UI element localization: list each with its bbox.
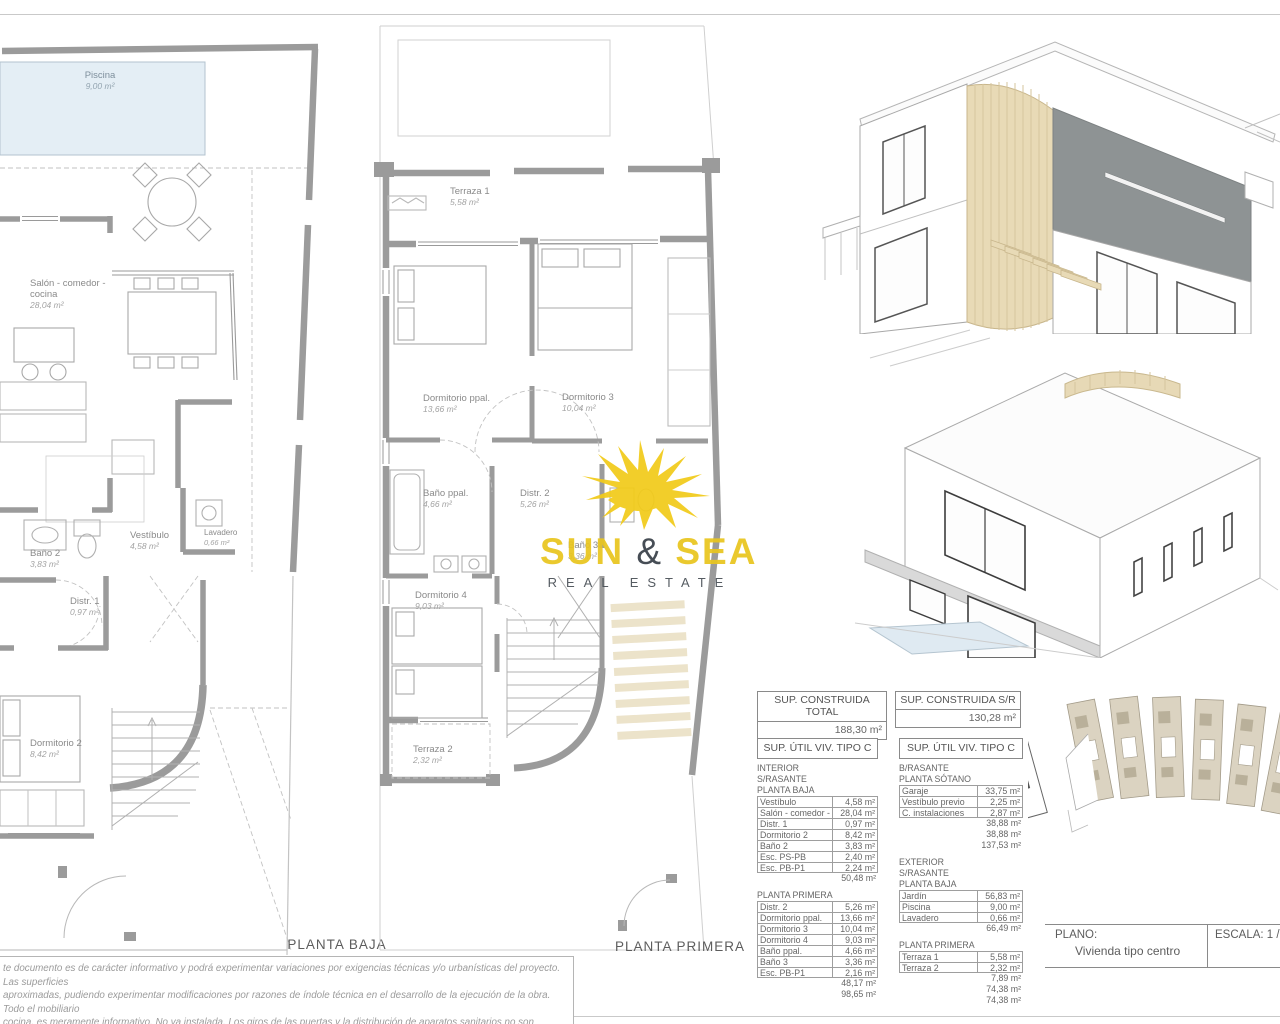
table-row: Baño 23,83 m² [757, 840, 878, 851]
table-subtotal: 74,38 m² [899, 995, 1023, 1006]
table-row: Vestíbulo4,58 m² [757, 796, 878, 807]
plano-section: PLANO: Vivienda tipo centro [1055, 929, 1180, 958]
table-section-label: S/RASANTE [757, 774, 878, 785]
table-subtotal: 98,65 m² [757, 989, 878, 1000]
table-sup-construida-sr: SUP. CONSTRUIDA S/R 130,28 m² [895, 691, 1021, 728]
room-label-lavadero: Lavadero0,66 m² [204, 528, 237, 547]
table-row: Dormitorio ppal.13,66 m² [757, 912, 878, 923]
table-subtotal: 66,49 m² [899, 923, 1023, 934]
table-row: Dormitorio 310,04 m² [757, 923, 878, 934]
table-sup-construida-total: SUP. CONSTRUIDA TOTAL 188,30 m² [757, 691, 887, 740]
room-label-distr1: Distr. 10,97 m² [70, 596, 100, 618]
room-label-dormitorio4: Dormitorio 49,03 m² [415, 590, 467, 612]
property-lines [0, 576, 293, 955]
table-row: Lavadero0,66 m² [899, 912, 1023, 923]
table-subtotal: 38,88 m² [899, 829, 1023, 840]
disclaimer-note: te documento es de carácter informativo … [0, 956, 574, 1024]
architectural-sheet: Piscina9,00 m² Salón - comedor -cocina 2… [0, 0, 1280, 1024]
escala-value: ESCALA: 1 / 75 [1215, 929, 1280, 941]
render [823, 42, 1280, 334]
room-label-bano3: Baño 33,36 m² [568, 540, 598, 562]
axonometric-view-front [805, 22, 1280, 334]
table-section-label: INTERIOR [757, 763, 878, 774]
plots [1028, 696, 1280, 832]
table-section-label: PLANTA PRIMERA [899, 940, 1023, 951]
room-label-dormitorio3: Dormitorio 310,04 m² [562, 392, 614, 414]
table-row: Vestíbulo previo2,25 m² [899, 796, 1023, 807]
garden-gate [58, 866, 136, 941]
table-value: 130,28 m² [895, 710, 1021, 728]
plano-value: Vivienda tipo centro [1075, 944, 1180, 958]
title-block: PLANO: Vivienda tipo centro ESCALA: 1 / … [1045, 924, 1280, 968]
axonometric-view-rear [850, 328, 1280, 658]
table-row: Distr. 10,97 m² [757, 818, 878, 829]
curved-wall [514, 668, 602, 768]
table-row: Baño 33,36 m² [757, 956, 878, 967]
table-subtotal: 38,88 m² [899, 818, 1023, 829]
stairs [507, 576, 600, 738]
table-header: SUP. CONSTRUIDA TOTAL [757, 691, 887, 722]
table-sup-util-interior: SUP. ÚTIL VIV. TIPO C INTERIORS/RASANTEP… [757, 738, 878, 1000]
table-header: SUP. ÚTIL VIV. TIPO C [757, 738, 878, 759]
room-label-terraza1: Terraza 15,58 m² [450, 186, 490, 208]
table-row: Dormitorio 49,03 m² [757, 934, 878, 945]
room-label-dormitorio2: Dormitorio 28,42 m² [30, 738, 82, 760]
room-label-distr2: Distr. 25,26 m² [520, 488, 550, 510]
table-subtotal: 50,48 m² [757, 873, 878, 884]
table-body: INTERIORS/RASANTEPLANTA BAJAVestíbulo4,5… [757, 763, 878, 1000]
disclaimer-line: aproximadas, pudiendo experimentar modif… [3, 989, 563, 1016]
title-block-divider [1207, 925, 1208, 967]
table-row: Jardín56,83 m² [899, 890, 1023, 901]
table-row: Esc. PB-P12,24 m² [757, 862, 878, 873]
curved-wall [110, 685, 203, 788]
room-label-dormitorio-ppal: Dormitorio ppal.13,66 m² [423, 393, 490, 415]
table-body: B/RASANTEPLANTA SÓTANOGaraje33,75 m²Vest… [899, 763, 1023, 1006]
table-subtotal: 137,53 m² [899, 840, 1023, 851]
table-section-label: PLANTA BAJA [899, 879, 1023, 890]
table-header: SUP. CONSTRUIDA S/R [895, 691, 1021, 710]
floor-plan-planta-baja [0, 20, 340, 955]
plan-title-primera: PLANTA PRIMERA [580, 939, 780, 954]
exterior-steps [610, 600, 691, 740]
room-label-piscina: Piscina9,00 m² [58, 70, 142, 92]
disclaimer-line: cocina, es meramente informativo. No va … [3, 1016, 563, 1024]
stairs [112, 708, 200, 830]
site-plan [1028, 682, 1280, 872]
table-header: SUP. ÚTIL VIV. TIPO C [899, 738, 1023, 759]
table-row: Garaje33,75 m² [899, 785, 1023, 796]
table-section-label: PLANTA BAJA [757, 785, 878, 796]
room-label-salon: Salón - comedor -cocina 28,04 m² [30, 278, 106, 311]
table-section-label: B/RASANTE [899, 763, 1023, 774]
table-subtotal: 7,89 m² [899, 973, 1023, 984]
disclaimer-line: te documento es de carácter informativo … [3, 962, 563, 989]
table-subtotal: 48,17 m² [757, 978, 878, 989]
table-section-label: PLANTA PRIMERA [757, 890, 878, 901]
render [855, 330, 1278, 658]
table-section-label: S/RASANTE [899, 868, 1023, 879]
table-row: Terraza 22,32 m² [899, 962, 1023, 973]
table-row: Salón - comedor - cocina28,04 m² [757, 807, 878, 818]
table-row: Terraza 15,58 m² [899, 951, 1023, 962]
room-label-terraza2: Terraza 22,32 m² [413, 744, 453, 766]
table-row: Esc. PB-P12,16 m² [757, 967, 878, 978]
plano-label: PLANO: [1055, 929, 1180, 941]
table-row: Esc. PS-PB2,40 m² [757, 851, 878, 862]
room-label-bano2: Baño 23,83 m² [30, 548, 60, 570]
garden-gate [624, 880, 670, 926]
table-sup-util-exterior: SUP. ÚTIL VIV. TIPO C B/RASANTEPLANTA SÓ… [899, 738, 1023, 1006]
table-row: Dormitorio 28,42 m² [757, 829, 878, 840]
table-row: Distr. 25,26 m² [757, 901, 878, 912]
table-row: C. instalaciones2,87 m² [899, 807, 1023, 818]
table-row: Baño ppal.4,66 m² [757, 945, 878, 956]
table-row: Piscina9,00 m² [899, 901, 1023, 912]
top-rule [0, 14, 1280, 15]
table-section-label: EXTERIOR [899, 857, 1023, 868]
room-label-vestibulo: Vestíbulo4,58 m² [130, 530, 169, 552]
table-subtotal: 74,38 m² [899, 984, 1023, 995]
room-label-bano-ppal: Baño ppal.4,66 m² [423, 488, 468, 510]
table-section-label: PLANTA SÓTANO [899, 774, 1023, 785]
